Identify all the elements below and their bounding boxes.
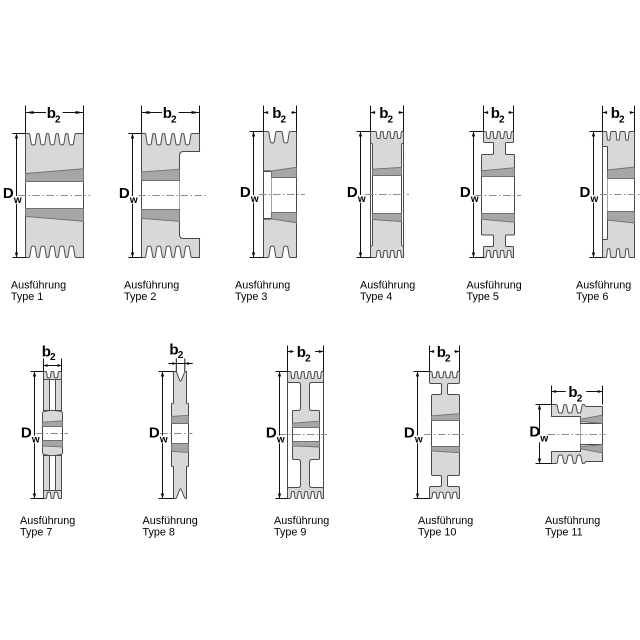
svg-text:Ausführung: Ausführung — [274, 515, 329, 527]
svg-text:w: w — [13, 195, 22, 206]
svg-text:Type 6: Type 6 — [576, 291, 608, 303]
svg-text:2: 2 — [619, 114, 625, 125]
svg-text:Ausführung: Ausführung — [467, 280, 522, 292]
svg-text:D: D — [347, 184, 358, 201]
svg-text:2: 2 — [388, 114, 394, 125]
svg-text:w: w — [159, 435, 168, 446]
svg-text:2: 2 — [171, 114, 177, 125]
svg-text:2: 2 — [577, 393, 583, 404]
svg-text:Type 3: Type 3 — [235, 291, 267, 303]
svg-text:2: 2 — [499, 114, 505, 125]
svg-text:Type 4: Type 4 — [360, 291, 392, 303]
svg-text:Ausführung: Ausführung — [360, 280, 415, 292]
svg-text:D: D — [580, 184, 591, 201]
svg-text:w: w — [31, 435, 40, 446]
svg-text:D: D — [119, 185, 130, 202]
svg-text:Type 11: Type 11 — [545, 527, 583, 539]
svg-text:D: D — [21, 425, 32, 442]
svg-text:2: 2 — [445, 353, 451, 364]
svg-text:2: 2 — [50, 352, 56, 363]
svg-text:Ausführung: Ausführung — [11, 280, 66, 292]
svg-text:D: D — [3, 185, 14, 202]
svg-text:D: D — [240, 184, 251, 201]
svg-text:w: w — [357, 194, 366, 205]
svg-text:Ausführung: Ausführung — [20, 515, 75, 527]
svg-text:Type 10: Type 10 — [418, 527, 456, 539]
svg-text:w: w — [539, 434, 548, 445]
svg-text:Type 7: Type 7 — [20, 527, 52, 539]
svg-text:Ausführung: Ausführung — [143, 515, 198, 527]
svg-text:Ausführung: Ausführung — [576, 280, 631, 292]
svg-text:2: 2 — [305, 353, 311, 364]
svg-text:Ausführung: Ausführung — [418, 515, 473, 527]
svg-text:Type 2: Type 2 — [124, 291, 156, 303]
svg-text:Type 8: Type 8 — [143, 527, 175, 539]
svg-text:Ausführung: Ausführung — [545, 515, 600, 527]
svg-text:2: 2 — [281, 114, 287, 125]
svg-text:w: w — [414, 435, 423, 446]
svg-text:w: w — [470, 194, 479, 205]
svg-text:2: 2 — [178, 350, 184, 361]
svg-text:w: w — [276, 435, 285, 446]
svg-text:D: D — [529, 424, 540, 441]
svg-text:w: w — [590, 194, 599, 205]
svg-text:w: w — [129, 195, 138, 206]
svg-text:Type 9: Type 9 — [274, 527, 306, 539]
svg-text:D: D — [404, 425, 415, 442]
svg-text:D: D — [266, 425, 277, 442]
svg-text:Ausführung: Ausführung — [235, 280, 290, 292]
svg-text:Ausführung: Ausführung — [124, 280, 179, 292]
svg-text:D: D — [149, 425, 160, 442]
svg-text:w: w — [250, 194, 259, 205]
svg-text:2: 2 — [55, 114, 61, 125]
svg-text:D: D — [460, 184, 471, 201]
svg-text:Type 1: Type 1 — [11, 291, 43, 303]
svg-text:Type 5: Type 5 — [467, 291, 499, 303]
